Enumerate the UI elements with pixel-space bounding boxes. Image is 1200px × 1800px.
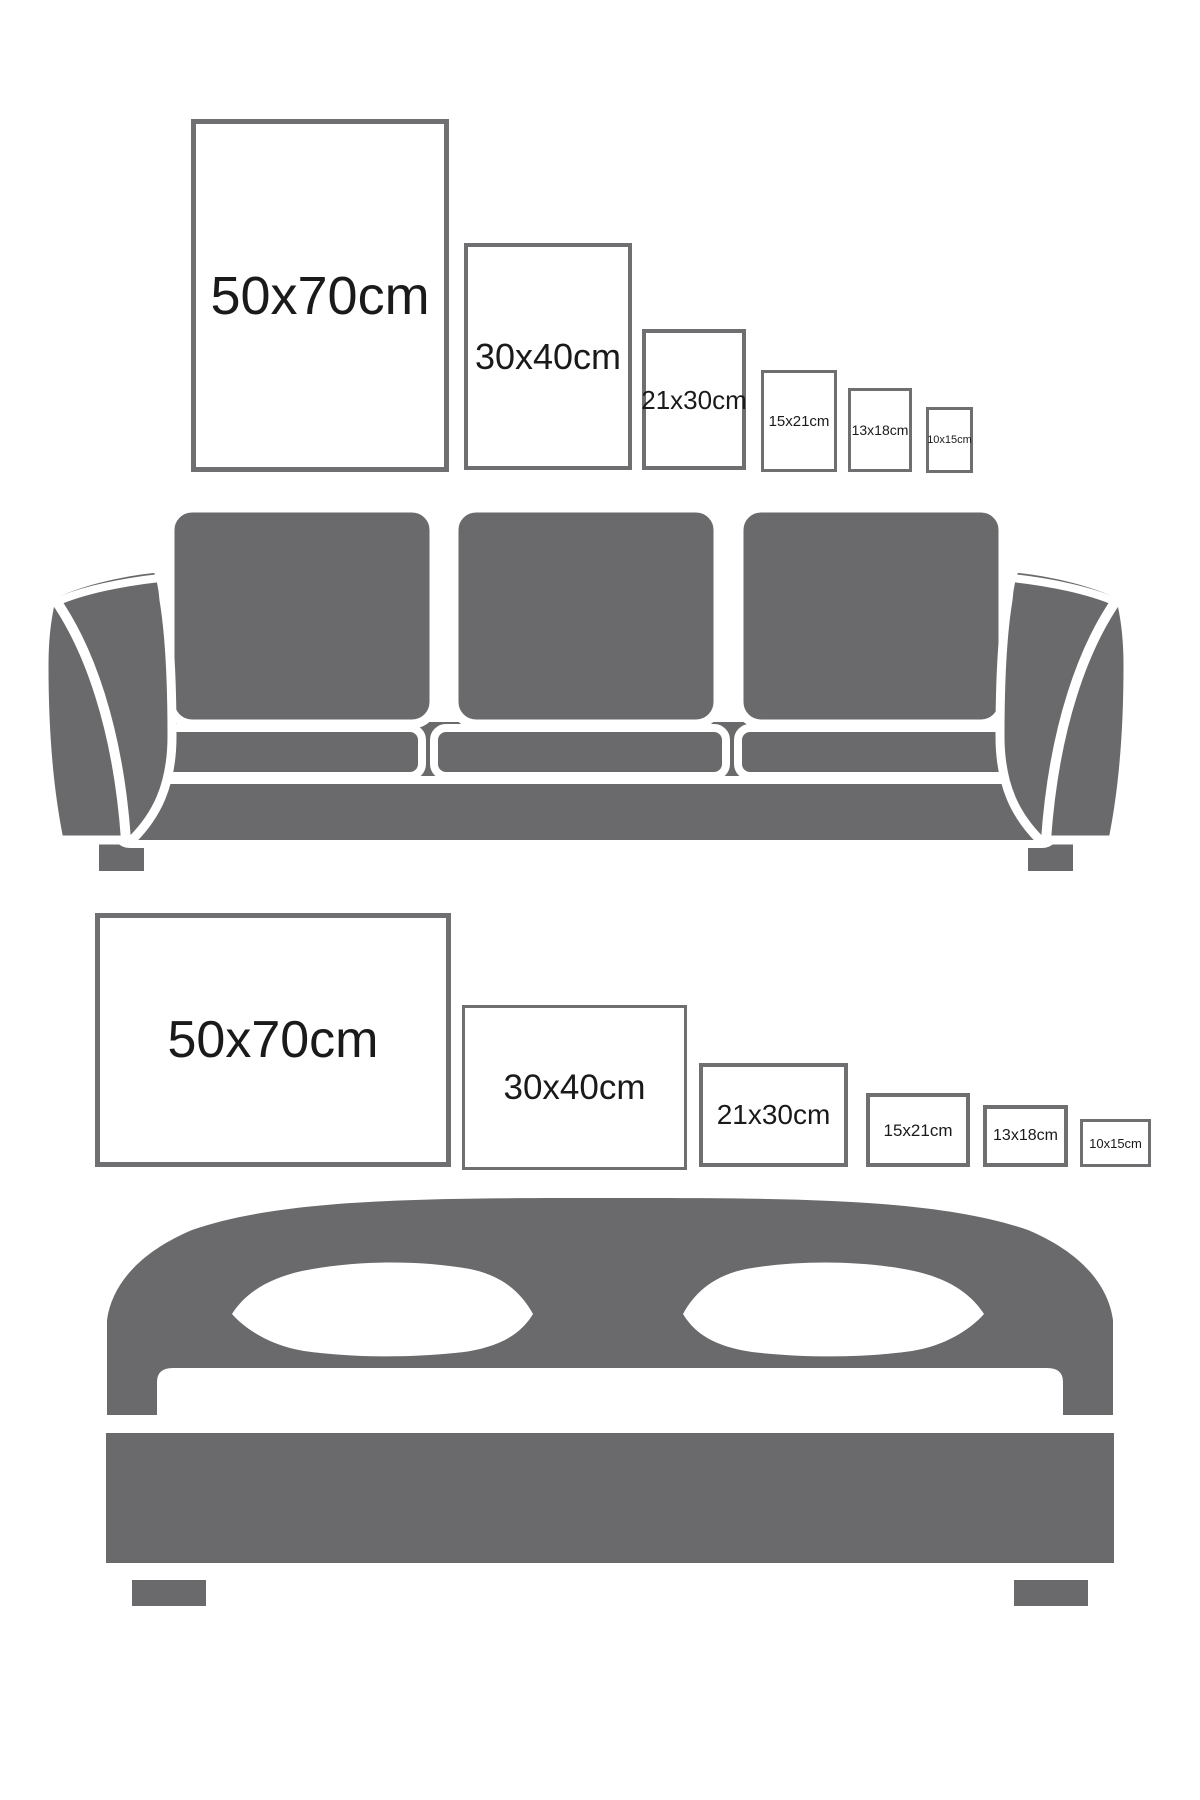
frame-label: 50x70cm [168, 1014, 379, 1066]
sofa-arm-right [1000, 568, 1128, 840]
frame-landscape-13x18: 13x18cm [983, 1105, 1068, 1167]
frame-landscape-15x21: 15x21cm [866, 1093, 970, 1167]
frame-label: 30x40cm [503, 1070, 645, 1105]
bed-foot-left [132, 1580, 206, 1606]
frame-landscape-30x40: 30x40cm [462, 1005, 687, 1170]
frame-landscape-10x15: 10x15cm [1080, 1119, 1151, 1167]
poster-size-guide: 50x70cm 30x40cm 21x30cm 15x21cm 13x18cm … [0, 0, 1200, 1800]
sofa-back-cushions [170, 508, 1003, 724]
sofa-arm-left [44, 568, 172, 840]
sofa-icon [44, 486, 1128, 876]
frame-label: 15x21cm [769, 414, 830, 429]
bed-foot-right [1014, 1580, 1088, 1606]
frame-label: 10x15cm [927, 435, 972, 446]
frame-portrait-30x40: 30x40cm [464, 243, 632, 470]
frame-label: 13x18cm [993, 1128, 1058, 1144]
frame-landscape-21x30: 21x30cm [699, 1063, 848, 1167]
frame-portrait-13x18: 13x18cm [848, 388, 912, 472]
bed-icon [100, 1192, 1160, 1612]
sofa-seat-cushions [86, 728, 1042, 776]
frame-portrait-50x70: 50x70cm [191, 119, 449, 472]
frame-label: 50x70cm [210, 269, 429, 323]
bed-body [106, 1433, 1114, 1563]
frame-landscape-50x70: 50x70cm [95, 913, 451, 1167]
bed-headboard [107, 1198, 1113, 1415]
frame-portrait-15x21: 15x21cm [761, 370, 837, 472]
frame-label: 15x21cm [884, 1122, 953, 1139]
sofa-rail [116, 780, 1056, 844]
frame-label: 30x40cm [475, 339, 621, 375]
frame-label: 13x18cm [852, 423, 909, 437]
frame-label: 21x30cm [717, 1101, 831, 1129]
frame-label: 10x15cm [1089, 1137, 1142, 1150]
frame-label: 21x30cm [641, 387, 747, 413]
frame-portrait-21x30: 21x30cm [642, 329, 746, 470]
frame-portrait-10x15: 10x15cm [926, 407, 973, 473]
